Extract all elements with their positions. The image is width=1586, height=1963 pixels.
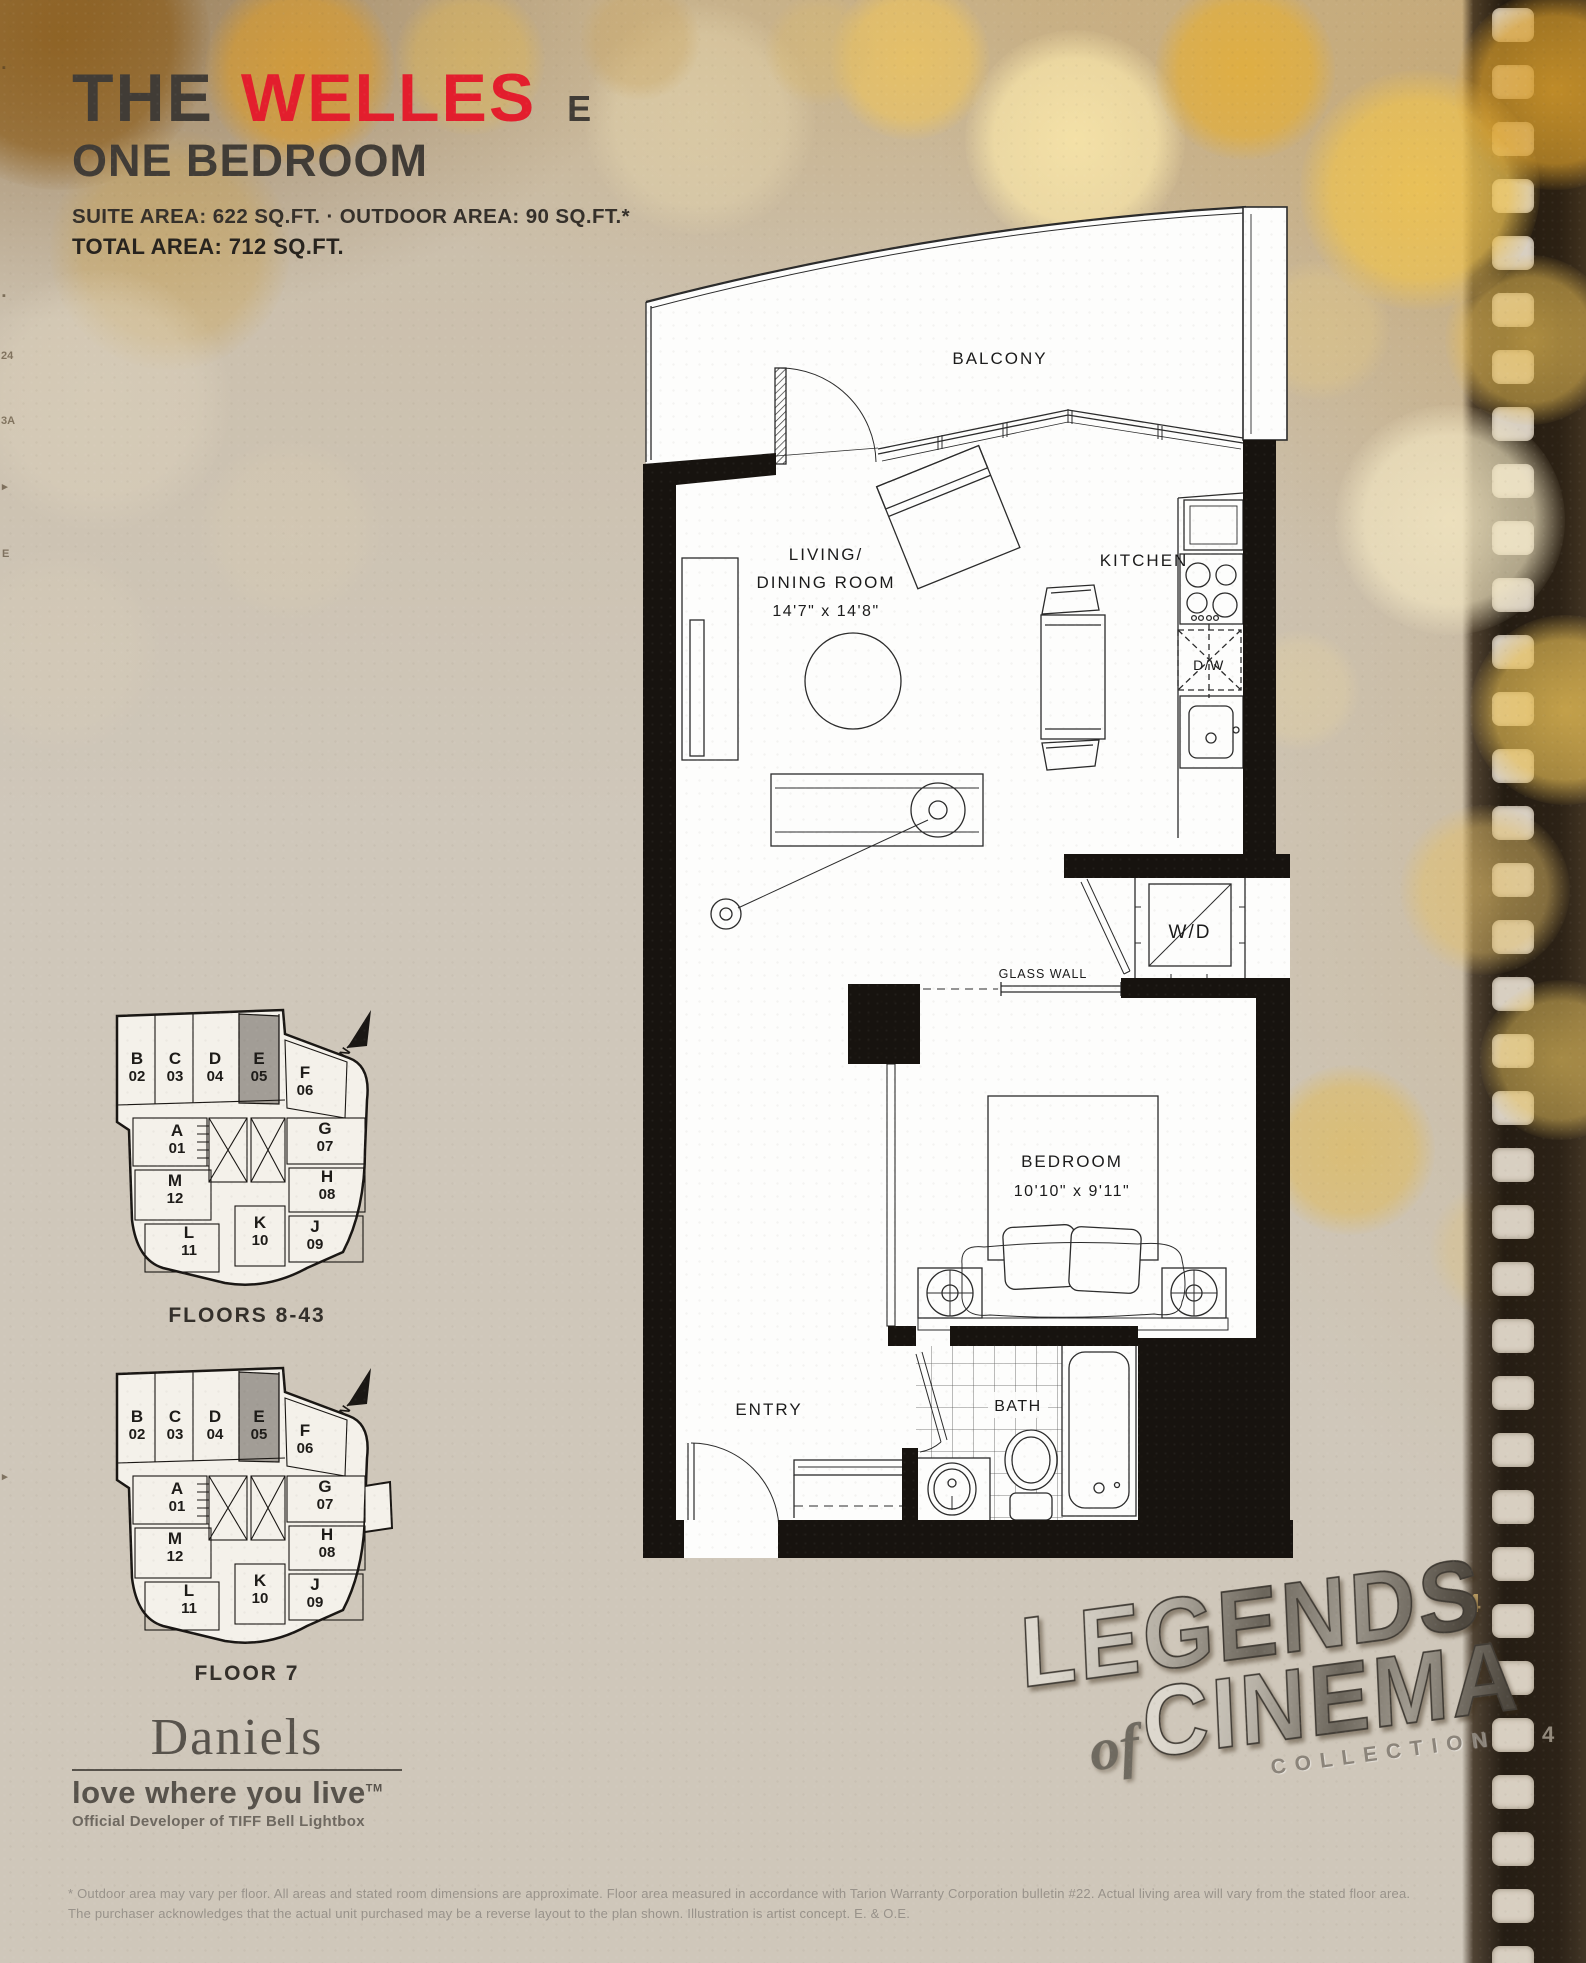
film-sprocket-hole: [1492, 920, 1534, 954]
unit-number: 02: [129, 1068, 146, 1085]
unit-number: 12: [167, 1190, 184, 1207]
film-sprocket-hole: [1492, 1148, 1534, 1182]
unit-letter: C: [169, 1407, 181, 1426]
unit-number: 08: [319, 1186, 336, 1203]
film-sprocket-hole: [1492, 1775, 1534, 1809]
film-sprocket-hole: [1492, 8, 1534, 42]
unit-letter: M: [168, 1529, 182, 1548]
film-edge-mark: 24: [1, 350, 13, 362]
bokeh-light: [1155, 0, 1335, 160]
unit-number: 10: [252, 1590, 269, 1607]
film-sprocket-hole: [1492, 692, 1534, 726]
unit-number: 04: [207, 1068, 224, 1085]
dishwasher-label: D/W: [1193, 657, 1225, 673]
living-label-line2: DINING ROOM: [756, 573, 895, 592]
unit-number: 10: [252, 1232, 269, 1249]
film-sprocket-hole: [1492, 1376, 1534, 1410]
film-sprocket-hole: [1492, 1034, 1534, 1068]
title-prefix: THE: [72, 60, 214, 136]
keyplan-floors-8-43: B02C03D04E05F06A01G07M12H08L11K10J09NFLO…: [92, 1000, 402, 1337]
unit-number: 09: [307, 1594, 324, 1611]
film-sprocket-hole: [1492, 1946, 1534, 1963]
floorplan-svg: BALCONY LIVING/ DINING ROOM 14'7" x 14'8…: [638, 198, 1330, 1566]
brochure-page: 44 ▪243A▸E▸▪ THE WELLES E ONE BEDROOM SU…: [0, 0, 1586, 1963]
unit-letter: H: [321, 1525, 333, 1544]
film-sprocket-hole: [1492, 1433, 1534, 1467]
unit-letter: G: [318, 1119, 331, 1138]
bath-vanity: [917, 1458, 990, 1522]
film-sprocket-hole: [1492, 1262, 1534, 1296]
unit-number: 06: [297, 1440, 314, 1457]
kitchen-label: KITCHEN: [1100, 551, 1189, 570]
keyplan-floor-7: B02C03D04E05F06A01G07M12H08L11K10J09NFLO…: [92, 1358, 402, 1695]
unit-letter: E: [253, 1407, 264, 1426]
film-edge-mark: E: [2, 548, 9, 560]
unit-number: 07: [317, 1138, 334, 1155]
unit-letter: F: [300, 1421, 310, 1440]
film-sprocket-hole: [1492, 179, 1534, 213]
unit-letter: J: [310, 1217, 319, 1236]
unit-number: 11: [181, 1242, 197, 1259]
daniels-logo: Daniels love where you liveTM Official D…: [70, 1708, 404, 1830]
bokeh-light: [0, 270, 230, 530]
of-word: of: [1085, 1711, 1144, 1786]
unit-number: 06: [297, 1082, 314, 1099]
film-sprocket-hole: [1492, 578, 1534, 612]
unit-number: 04: [207, 1426, 224, 1443]
unit-letter: B: [131, 1407, 143, 1426]
entry-label: ENTRY: [735, 1400, 802, 1419]
film-sprocket-hole: [1492, 1319, 1534, 1353]
keyplan-svg: B02C03D04E05F06A01G07M12H08L11K10J09NFLO…: [92, 1358, 402, 1690]
unit-letter: B: [131, 1049, 143, 1068]
film-sprocket-hole: [1492, 806, 1534, 840]
unit-letter: A: [171, 1479, 183, 1498]
film-sprocket-hole: [1492, 65, 1534, 99]
film-sprocket-hole: [1492, 521, 1534, 555]
unit-letter: D: [209, 1049, 221, 1068]
suite-area-line: SUITE AREA: 622 SQ.FT. · OUTDOOR AREA: 9…: [72, 205, 630, 229]
disclaimer-line1: * Outdoor area may vary per floor. All a…: [68, 1884, 1458, 1904]
unit-number: 05: [251, 1068, 268, 1085]
keyplan-caption: FLOOR 7: [194, 1662, 299, 1685]
plan-type: ONE BEDROOM: [72, 138, 630, 183]
header: THE WELLES E ONE BEDROOM SUITE AREA: 622…: [72, 64, 630, 260]
unit-letter: K: [254, 1571, 267, 1590]
film-sprocket-hole: [1492, 407, 1534, 441]
total-area-line: TOTAL AREA: 712 SQ.FT.: [72, 234, 630, 260]
developer-line: Official Developer of TIFF Bell Lightbox: [70, 1813, 404, 1830]
bokeh-light: [765, 0, 875, 105]
keyplan-svg: B02C03D04E05F06A01G07M12H08L11K10J09NFLO…: [92, 1000, 402, 1332]
bedroom-dims: 10'10" x 9'11": [1014, 1183, 1130, 1200]
film-edge-mark: ▪: [2, 290, 6, 302]
keyplan-caption: FLOORS 8-43: [168, 1304, 325, 1327]
tagline-text: love where you live: [72, 1775, 366, 1810]
unit-letter: L: [184, 1223, 194, 1242]
unit-letter: L: [184, 1581, 194, 1600]
film-sprocket-hole: [1492, 1832, 1534, 1866]
film-sprocket-hole: [1492, 749, 1534, 783]
film-edge-mark: ▸: [2, 480, 8, 493]
north-arrow: N: [336, 1010, 371, 1061]
north-arrow: N: [336, 1368, 371, 1419]
floor7-terrace: [365, 1482, 392, 1532]
unit-number: 05: [251, 1426, 268, 1443]
film-sprocket-hole: [1492, 236, 1534, 270]
unit-letter: H: [321, 1167, 333, 1186]
title-suite-name: WELLES: [241, 60, 536, 136]
washer-dryer-label: W/D: [1169, 922, 1212, 943]
film-sprocket-hole: [1492, 293, 1534, 327]
film-edge-mark: ▸: [2, 1470, 8, 1483]
unit-letter: E: [253, 1049, 264, 1068]
film-sprocket-hole: [1492, 1889, 1534, 1923]
living-dims: 14'7" x 14'8": [772, 603, 879, 620]
unit-letter: D: [209, 1407, 221, 1426]
bedroom-wall: [887, 1064, 895, 1326]
film-sprocket-hole: [1492, 635, 1534, 669]
unit-number: 02: [129, 1426, 146, 1443]
film-edge-mark: 3A: [1, 415, 15, 427]
film-sprocket-hole: [1492, 1205, 1534, 1239]
balcony-label: BALCONY: [952, 349, 1047, 368]
unit-number: 09: [307, 1236, 324, 1253]
film-sprocket-hole: [1492, 1490, 1534, 1524]
film-frame-number: 4: [1542, 1722, 1554, 1748]
film-sprocket-hole: [1492, 977, 1534, 1011]
disclaimer: * Outdoor area may vary per floor. All a…: [68, 1884, 1458, 1923]
film-sprocket-hole: [1492, 1091, 1534, 1125]
unit-number: 03: [167, 1426, 184, 1443]
film-sprocket-hole: [1492, 122, 1534, 156]
toilet: [1005, 1430, 1057, 1520]
unit-number: 01: [169, 1140, 186, 1157]
bokeh-light: [200, 440, 380, 620]
title-suite-letter: E: [567, 88, 593, 129]
disclaimer-line2: The purchaser acknowledges that the actu…: [68, 1904, 1458, 1924]
film-sprocket-hole: [1492, 863, 1534, 897]
collection-logo: LEGENDS of CINEMA COLLECTION: [1001, 1552, 1503, 1813]
unit-letter: M: [168, 1171, 182, 1190]
living-label-line1: LIVING/: [789, 545, 863, 564]
bokeh-light: [0, 550, 160, 750]
unit-letter: A: [171, 1121, 183, 1140]
bath-label: BATH: [994, 1398, 1041, 1415]
trademark-symbol: TM: [366, 1783, 383, 1795]
daniels-tagline: love where you liveTM: [70, 1775, 404, 1811]
film-edge-mark: ▪: [2, 62, 6, 74]
divider: [72, 1769, 402, 1771]
bathtub: [1062, 1344, 1136, 1516]
daniels-wordmark: Daniels: [70, 1708, 404, 1767]
unit-letter: J: [310, 1575, 319, 1594]
unit-letter: K: [254, 1213, 267, 1232]
unit-number: 03: [167, 1068, 184, 1085]
bokeh-light: [830, 0, 990, 140]
glass-wall-label: GLASS WALL: [999, 967, 1088, 981]
film-sprocket-hole: [1492, 1547, 1534, 1581]
unit-letter: F: [300, 1063, 310, 1082]
unit-number: 12: [167, 1548, 184, 1565]
unit-number: 08: [319, 1544, 336, 1561]
unit-letter: G: [318, 1477, 331, 1496]
page-title: THE WELLES E: [72, 64, 630, 132]
bedroom-label: BEDROOM: [1021, 1152, 1123, 1171]
unit-number: 07: [317, 1496, 334, 1513]
unit-number: 11: [181, 1600, 197, 1617]
film-sprocket-hole: [1492, 350, 1534, 384]
film-sprocket-hole: [1492, 464, 1534, 498]
unit-letter: C: [169, 1049, 181, 1068]
unit-number: 01: [169, 1498, 186, 1515]
